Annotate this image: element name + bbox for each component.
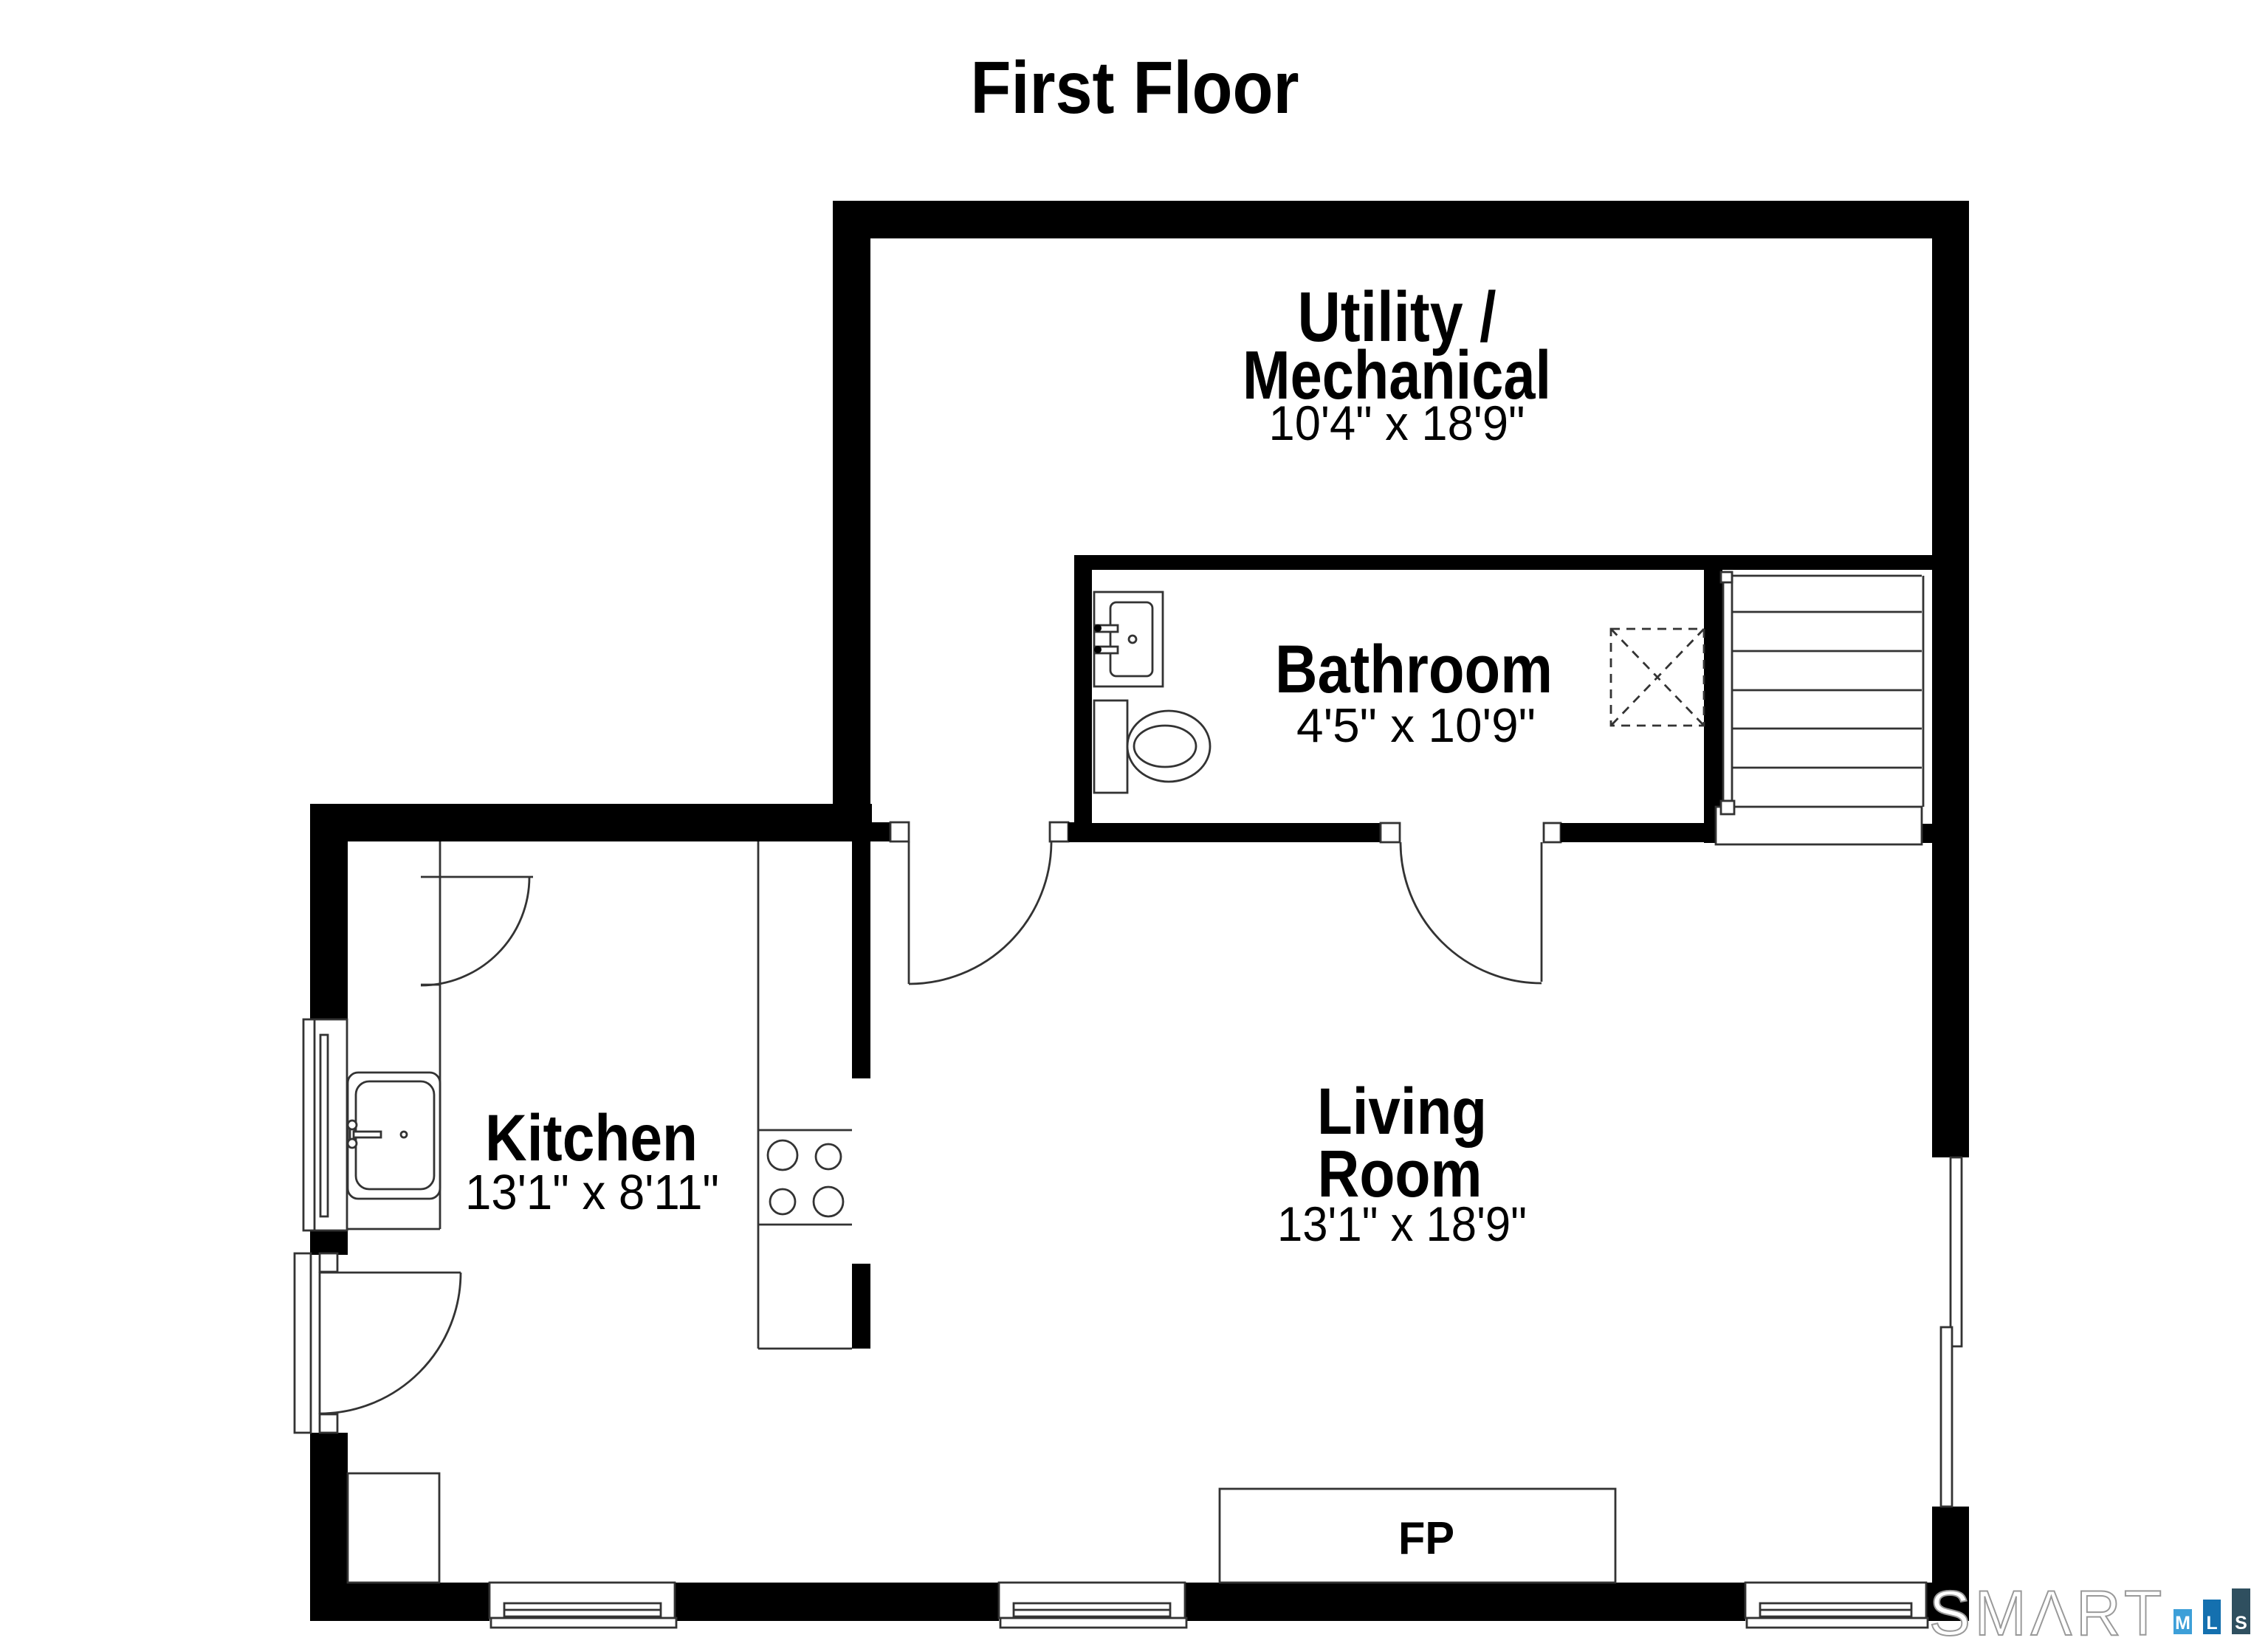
svg-text:13'1" x 8'11": 13'1" x 8'11" [465,1165,719,1220]
svg-text:Kitchen: Kitchen [485,1101,698,1174]
svg-text:4'5" x 10'9": 4'5" x 10'9" [1296,698,1536,752]
svg-text:L: L [2206,1613,2217,1633]
svg-text:M: M [2175,1613,2190,1633]
svg-text:Living: Living [1317,1074,1487,1148]
svg-text:FP: FP [1398,1513,1454,1564]
svg-text:First Floor: First Floor [971,47,1299,129]
svg-text:13'1" x 18'9": 13'1" x 18'9" [1277,1197,1527,1251]
svg-text:10'4" x 18'9": 10'4" x 18'9" [1269,396,1525,450]
svg-text:SMΛRT: SMΛRT [1929,1578,2166,1649]
svg-text:Bathroom: Bathroom [1275,632,1553,707]
svg-text:S: S [2235,1613,2247,1633]
